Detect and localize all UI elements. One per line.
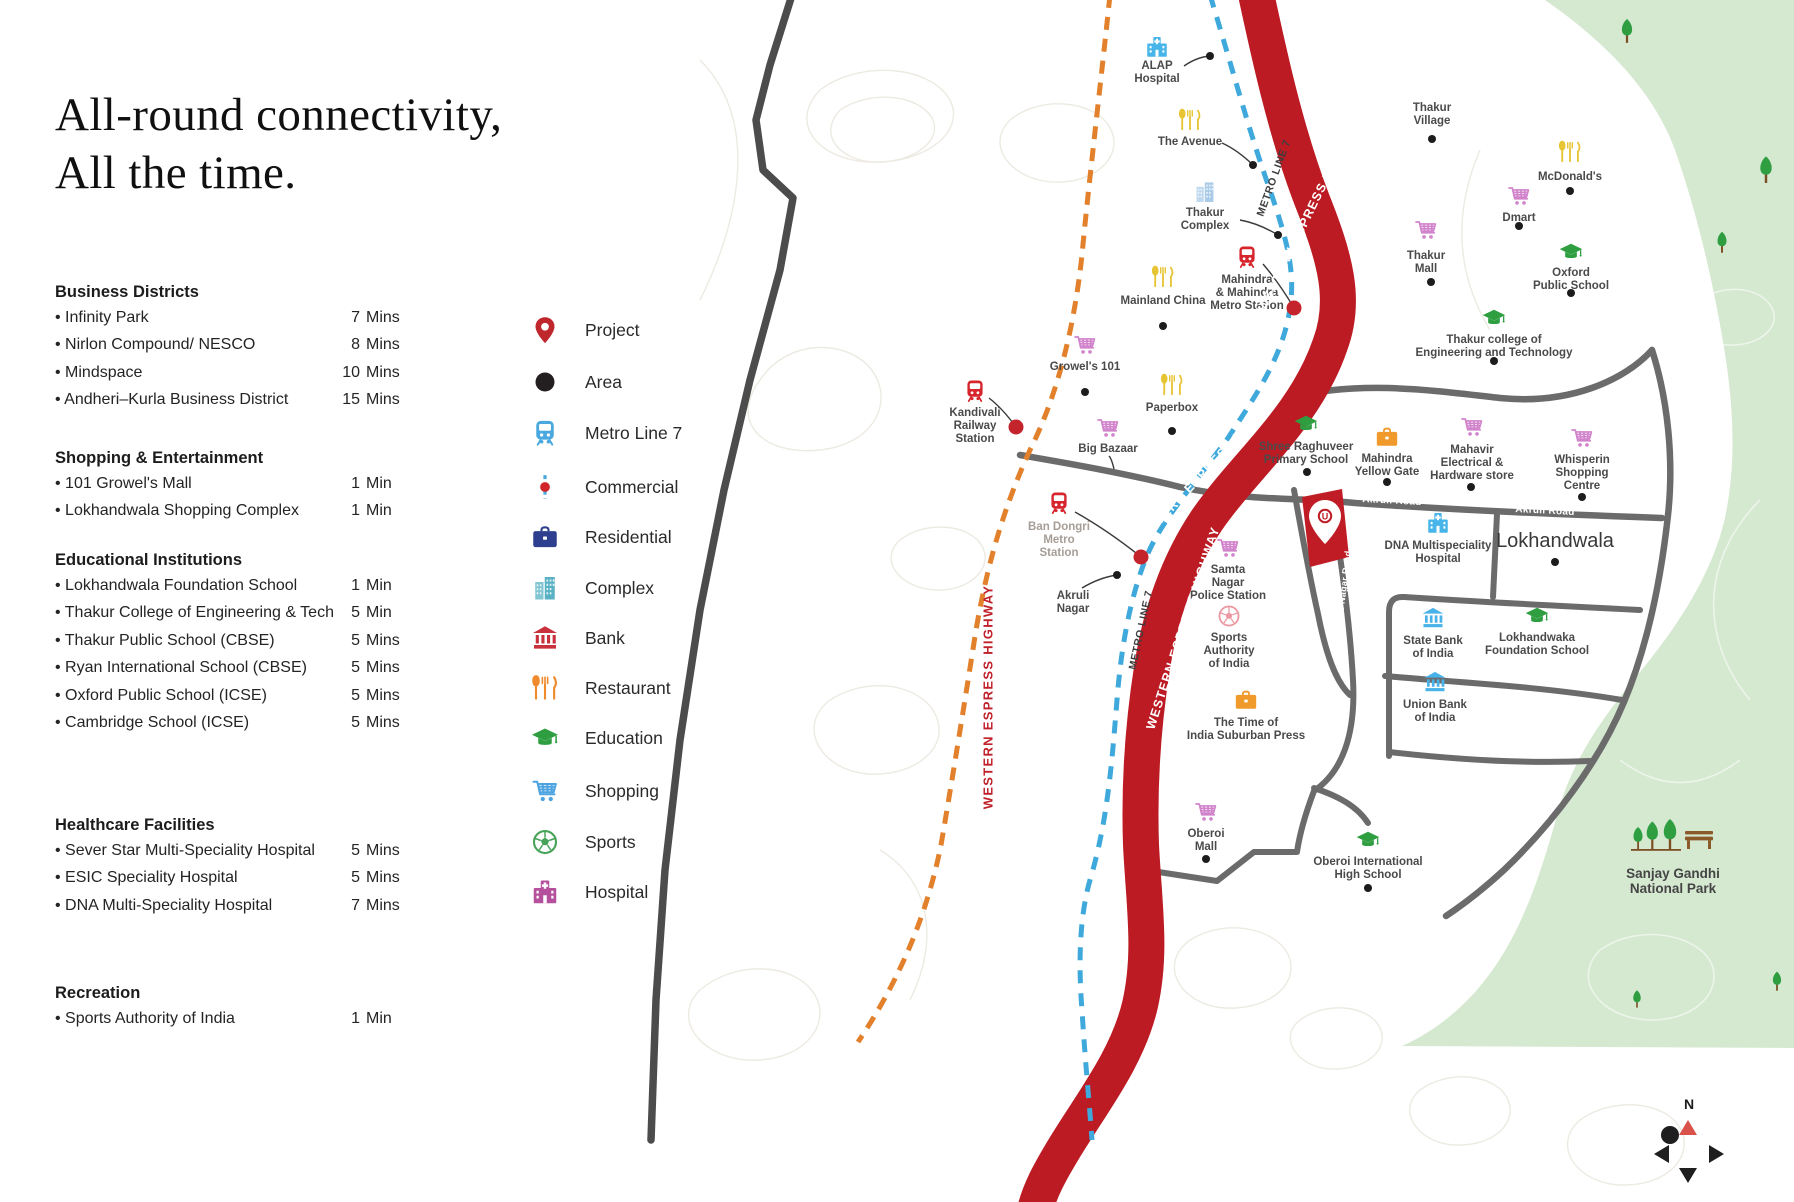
poi-dot-shree-raghuveer-primary-school — [1303, 468, 1311, 476]
restaurant-cutlery-icon — [1159, 372, 1185, 403]
metro-train-icon — [1234, 244, 1260, 275]
poi-thakur-college-of-engineering-and-technology: Thakur college ofEngineering and Technol… — [1416, 334, 1573, 360]
poi-kandivali-railway-station: KandivaliRailwayStation — [949, 407, 1000, 445]
residential-briefcase-icon — [1233, 687, 1259, 718]
poi-the-time-of-india-suburban-press: The Time ofIndia Suburban Press — [1187, 717, 1305, 743]
poi-dot-ban-dongri-metro-station — [1134, 550, 1149, 565]
education-cap-icon — [1293, 411, 1319, 442]
metro-train-icon — [962, 378, 988, 409]
poi-oberoi-mall: OberoiMall — [1187, 828, 1224, 854]
poi-dot-kandivali-railway-station — [1009, 420, 1024, 435]
poi-dot-mcdonald-s — [1566, 187, 1574, 195]
residential-briefcase-icon — [1374, 424, 1400, 455]
poi-thakur-complex: ThakurComplex — [1181, 207, 1230, 233]
poi-dot-the-avenue — [1249, 161, 1257, 169]
poi-akruli-nagar: AkruliNagar — [1057, 590, 1090, 616]
shopping-cart-icon — [1506, 183, 1532, 214]
poi-dna-multispeciality-hospital: DNA MultispecialityHospital — [1385, 540, 1492, 566]
poi-sanjay-gandhi-national-park: Sanjay GandhiNational Park — [1626, 866, 1720, 896]
shopping-cart-icon — [1569, 425, 1595, 456]
poi-dot-paperbox — [1168, 427, 1176, 435]
shopping-cart-icon — [1413, 217, 1439, 248]
restaurant-cutlery-icon — [1557, 139, 1583, 170]
poi-the-avenue: The Avenue — [1158, 136, 1222, 149]
poi-mainland-china: Mainland China — [1121, 295, 1206, 308]
compass-east-arrow-icon — [1709, 1145, 1724, 1163]
compass-north-label: N — [1684, 1096, 1694, 1112]
sports-ball-icon — [1216, 603, 1242, 634]
education-cap-icon — [1558, 239, 1584, 270]
poi-dot-whisperin-shopping-centre — [1578, 493, 1586, 501]
poi-lokhandwaka-foundation-school: LokhandwakaFoundation School — [1485, 632, 1589, 658]
poi-dot-mahindra-mahindra-metro-station — [1287, 301, 1302, 316]
poi-dot-lokhandwala — [1551, 558, 1559, 566]
education-cap-icon — [1524, 603, 1550, 634]
poi-mahavir-electrical-hardware-store: MahavirElectrical &Hardware store — [1430, 444, 1514, 482]
restaurant-cutlery-icon — [1177, 107, 1203, 138]
poi-dot-mahavir-electrical-hardware-store — [1467, 483, 1475, 491]
metro-train-icon — [1046, 490, 1072, 521]
poi-dot-oberoi-international-high-school — [1364, 884, 1372, 892]
poi-alap-hospital: ALAPHospital — [1134, 60, 1179, 86]
poi-shree-raghuveer-primary-school: Shree RaghuveerPrimary School — [1259, 441, 1354, 467]
compass-rose: N — [1650, 1096, 1728, 1192]
poi-oberoi-international-high-school: Oberoi InternationalHigh School — [1313, 856, 1422, 882]
poi-dot-oxford-public-school — [1567, 289, 1575, 297]
hospital-icon — [1425, 510, 1451, 541]
connectivity-map-page: All-round connectivity, All the time. Bu… — [0, 0, 1794, 1202]
shopping-cart-icon — [1072, 332, 1098, 363]
poi-dot-growel-s-101 — [1081, 388, 1089, 396]
poi-union-bank-of-india: Union Bankof India — [1403, 699, 1467, 725]
bank-icon — [1420, 605, 1446, 636]
poi-dot-alap-hospital — [1206, 52, 1214, 60]
poi-thakur-mall: ThakurMall — [1407, 250, 1445, 276]
poi-dot-thakur-college-of-engineering-and-technology — [1490, 357, 1498, 365]
compass-south-arrow-icon — [1679, 1168, 1697, 1183]
poi-ban-dongri-metro-station: Ban DongriMetroStation — [1028, 521, 1090, 559]
poi-dot-thakur-complex — [1274, 231, 1282, 239]
poi-whisperin-shopping-centre: WhisperinShoppingCentre — [1554, 454, 1610, 492]
compass-hub — [1661, 1126, 1679, 1144]
poi-dot-dmart — [1515, 222, 1523, 230]
connector-lines — [0, 0, 1794, 1202]
road-label-western-espress-highway: WESTERN ESPRESS HIGHWAY — [981, 585, 996, 809]
poi-sports-authority-of-india: SportsAuthorityof India — [1203, 632, 1254, 670]
poi-big-bazaar: Big Bazaar — [1078, 443, 1137, 456]
poi-dot-mainland-china — [1159, 322, 1167, 330]
shopping-cart-icon — [1095, 415, 1121, 446]
education-cap-icon — [1481, 305, 1507, 336]
poi-mcdonald-s: McDonald's — [1538, 171, 1602, 184]
poi-lokhandwala: Lokhandwala — [1496, 530, 1614, 552]
poi-mahindra-yellow-gate: MahindraYellow Gate — [1355, 453, 1420, 479]
poi-dot-thakur-village — [1428, 135, 1436, 143]
complex-buildings-icon — [1192, 179, 1218, 210]
park-trees-icon — [1627, 819, 1719, 862]
poi-state-bank-of-india: State Bankof India — [1403, 635, 1462, 661]
poi-dot-oberoi-mall — [1202, 855, 1210, 863]
poi-dot-akruli-nagar — [1113, 571, 1121, 579]
compass-north-arrow-icon — [1679, 1120, 1697, 1135]
education-cap-icon — [1355, 827, 1381, 858]
locality-map: U ALAPHospitalThe AvenueThakurComplexTha… — [0, 0, 1794, 1202]
shopping-cart-icon — [1459, 414, 1485, 445]
bank-icon — [1422, 669, 1448, 700]
restaurant-cutlery-icon — [1150, 264, 1176, 295]
poi-thakur-village: ThakurVillage — [1413, 102, 1451, 128]
poi-growel-s-101: Growel's 101 — [1050, 361, 1121, 374]
shopping-cart-icon — [1193, 799, 1219, 830]
poi-dot-thakur-mall — [1427, 278, 1435, 286]
poi-paperbox: Paperbox — [1146, 402, 1198, 415]
poi-dot-mahindra-yellow-gate — [1383, 478, 1391, 486]
compass-west-arrow-icon — [1654, 1145, 1669, 1163]
